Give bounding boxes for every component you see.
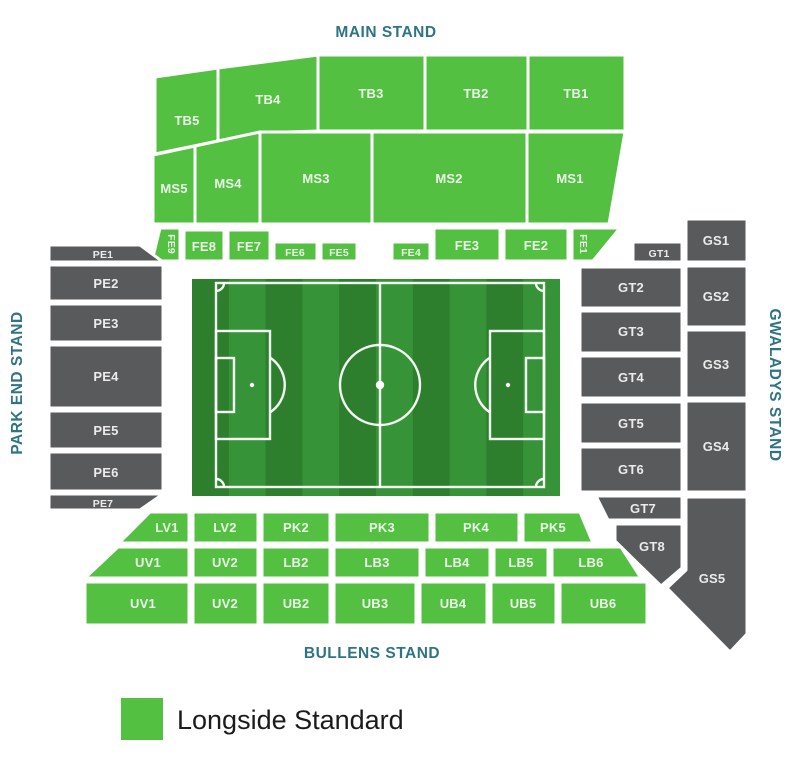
pitch-stripe <box>192 279 229 496</box>
section-gs4-label: GS4 <box>703 439 730 454</box>
section-fe5-label: FE5 <box>329 247 349 259</box>
section-pe2: PE2 <box>49 265 163 301</box>
section-pe5: PE5 <box>49 411 163 449</box>
section-fe2[interactable]: FE2 <box>504 228 568 261</box>
section-uv1-lower-label: UV1 <box>130 596 156 611</box>
section-gt6: GT6 <box>580 447 682 492</box>
section-gt6-label: GT6 <box>618 462 644 477</box>
section-gt7: GT7 <box>596 496 682 520</box>
section-pk3[interactable]: PK3 <box>334 512 430 543</box>
section-tb5[interactable]: TB5 <box>155 68 218 154</box>
section-gt1: GT1 <box>633 242 682 262</box>
section-pk5[interactable]: PK5 <box>523 512 593 543</box>
park-end-stand-title: PARK END STAND <box>9 311 26 454</box>
section-pk2[interactable]: PK2 <box>262 512 330 543</box>
section-lb4-label: LB4 <box>444 555 470 570</box>
section-gt2-label: GT2 <box>618 280 644 295</box>
pitch-stripe <box>339 279 376 496</box>
section-gt1-label: GT1 <box>648 248 669 260</box>
section-ub3[interactable]: UB3 <box>334 582 416 625</box>
section-fe5[interactable]: FE5 <box>321 242 357 261</box>
section-lb3-label: LB3 <box>364 555 389 570</box>
section-pe5-label: PE5 <box>93 423 118 438</box>
section-tb5-shape <box>155 68 218 154</box>
section-tb3[interactable]: TB3 <box>318 55 425 131</box>
section-pk5-label: PK5 <box>540 520 566 535</box>
section-fe2-label: FE2 <box>524 238 548 253</box>
pitch <box>192 279 560 496</box>
centre-spot <box>376 381 384 389</box>
section-fe8[interactable]: FE8 <box>184 230 224 261</box>
legend-label: Longside Standard <box>177 705 404 735</box>
section-lb6-label: LB6 <box>578 555 603 570</box>
section-pe4: PE4 <box>49 345 163 408</box>
section-gt3: GT3 <box>580 311 682 353</box>
section-gs1-label: GS1 <box>703 233 730 248</box>
section-tb5-label: TB5 <box>174 113 199 128</box>
section-tb1[interactable]: TB1 <box>528 55 625 131</box>
section-fe1-label: FE1 <box>577 234 589 254</box>
legend-swatch <box>121 698 163 740</box>
main-stand-title: MAIN STAND <box>335 24 436 41</box>
section-gt5-label: GT5 <box>618 416 644 431</box>
section-lb3[interactable]: LB3 <box>334 547 420 578</box>
section-ub4-label: UB4 <box>440 596 467 611</box>
section-pe3: PE3 <box>49 304 163 342</box>
section-fe3-label: FE3 <box>455 238 479 253</box>
section-lb2-label: LB2 <box>283 555 308 570</box>
section-ub3-label: UB3 <box>362 596 389 611</box>
section-pe3-label: PE3 <box>93 316 118 331</box>
section-gs5-label: GS5 <box>699 571 726 586</box>
section-gt3-label: GT3 <box>618 324 644 339</box>
section-lb5-label: LB5 <box>508 555 533 570</box>
section-gs4: GS4 <box>686 401 747 492</box>
section-lv2-label: LV2 <box>213 520 236 535</box>
section-pk3-label: PK3 <box>369 520 395 535</box>
gwaladys-stand-title: GWALADYS STAND <box>766 308 783 461</box>
section-uv1-middle[interactable]: UV1 <box>85 547 189 578</box>
section-tb2[interactable]: TB2 <box>425 55 528 131</box>
section-pe7: PE7 <box>49 494 163 510</box>
section-ms1[interactable]: MS1 <box>527 132 625 224</box>
section-uv1-middle-label: UV1 <box>135 555 161 570</box>
section-gs3-label: GS3 <box>703 357 730 372</box>
section-uv2-middle[interactable]: UV2 <box>193 547 258 578</box>
section-uv2-middle-label: UV2 <box>212 555 238 570</box>
section-lb2[interactable]: LB2 <box>262 547 330 578</box>
section-lv2[interactable]: LV2 <box>193 512 258 543</box>
left-penalty-spot <box>250 383 254 387</box>
section-tb2-label: TB2 <box>463 86 488 101</box>
section-fe4-label: FE4 <box>401 247 421 259</box>
section-ms5[interactable]: MS5 <box>153 146 195 224</box>
section-pe1: PE1 <box>49 245 163 262</box>
section-pe1-label: PE1 <box>93 249 113 261</box>
section-ub5-label: UB5 <box>510 596 537 611</box>
section-uv2-lower[interactable]: UV2 <box>193 582 258 625</box>
section-fe1[interactable]: FE1 <box>572 228 620 261</box>
section-pk2-label: PK2 <box>283 520 309 535</box>
section-uv1-lower[interactable]: UV1 <box>85 582 189 625</box>
section-fe7-label: FE7 <box>237 239 261 254</box>
section-pe4-label: PE4 <box>93 369 119 384</box>
seat-map-canvas: MAIN STAND BULLENS STAND PARK END STAND … <box>0 0 798 766</box>
section-ub5[interactable]: UB5 <box>491 582 556 625</box>
section-uv2-lower-label: UV2 <box>212 596 238 611</box>
section-pk4-label: PK4 <box>463 520 489 535</box>
section-tb4-label: TB4 <box>255 92 281 107</box>
section-pe6-label: PE6 <box>93 465 118 480</box>
section-pe6: PE6 <box>49 452 163 491</box>
section-fe6[interactable]: FE6 <box>274 242 317 261</box>
section-fe4[interactable]: FE4 <box>392 242 430 261</box>
section-pk4[interactable]: PK4 <box>434 512 519 543</box>
section-gs1: GS1 <box>686 219 747 262</box>
section-gs3: GS3 <box>686 330 747 398</box>
section-pe7-label: PE7 <box>93 498 113 510</box>
section-ms4[interactable]: MS4 <box>195 132 260 224</box>
pitch-stripe <box>486 279 523 496</box>
bullens-stand-title: BULLENS STAND <box>304 645 440 662</box>
section-ub6[interactable]: UB6 <box>560 582 647 625</box>
section-lb5[interactable]: LB5 <box>494 547 548 578</box>
section-ub2-label: UB2 <box>283 596 310 611</box>
section-gs2: GS2 <box>686 266 747 327</box>
section-gs2-label: GS2 <box>703 289 730 304</box>
section-fe8-label: FE8 <box>192 239 216 254</box>
pitch-stripe <box>413 279 450 496</box>
section-gt4-label: GT4 <box>618 370 644 385</box>
section-tb4[interactable]: TB4 <box>218 55 318 141</box>
stadium-seat-map: MAIN STAND BULLENS STAND PARK END STAND … <box>0 0 798 766</box>
section-ms3-label: MS3 <box>302 171 329 186</box>
section-gt4: GT4 <box>580 356 682 398</box>
section-lb4[interactable]: LB4 <box>424 547 490 578</box>
section-pe2-label: PE2 <box>93 276 118 291</box>
right-penalty-spot <box>506 383 510 387</box>
section-ms2-label: MS2 <box>435 171 462 186</box>
section-tb1-label: TB1 <box>563 86 588 101</box>
section-fe3[interactable]: FE3 <box>434 228 500 261</box>
section-lv1-label: LV1 <box>155 520 178 535</box>
section-fe9-label: FE9 <box>165 234 177 254</box>
section-gt7-label: GT7 <box>630 501 656 516</box>
section-fe6-label: FE6 <box>285 247 305 259</box>
section-ms3[interactable]: MS3 <box>260 132 372 224</box>
section-ub6-label: UB6 <box>590 596 617 611</box>
section-ms4-label: MS4 <box>214 176 242 191</box>
section-tb3-label: TB3 <box>358 86 383 101</box>
section-ub4[interactable]: UB4 <box>420 582 487 625</box>
section-fe7[interactable]: FE7 <box>228 230 270 261</box>
legend: Longside Standard <box>121 698 404 740</box>
section-gt2: GT2 <box>580 267 682 308</box>
section-ms2[interactable]: MS2 <box>372 132 527 224</box>
section-gt5: GT5 <box>580 402 682 444</box>
section-gt8-label: GT8 <box>639 539 665 554</box>
section-ub2[interactable]: UB2 <box>262 582 330 625</box>
section-lv1[interactable]: LV1 <box>119 512 189 543</box>
section-ms1-label: MS1 <box>556 171 583 186</box>
section-ms5-label: MS5 <box>160 181 187 196</box>
